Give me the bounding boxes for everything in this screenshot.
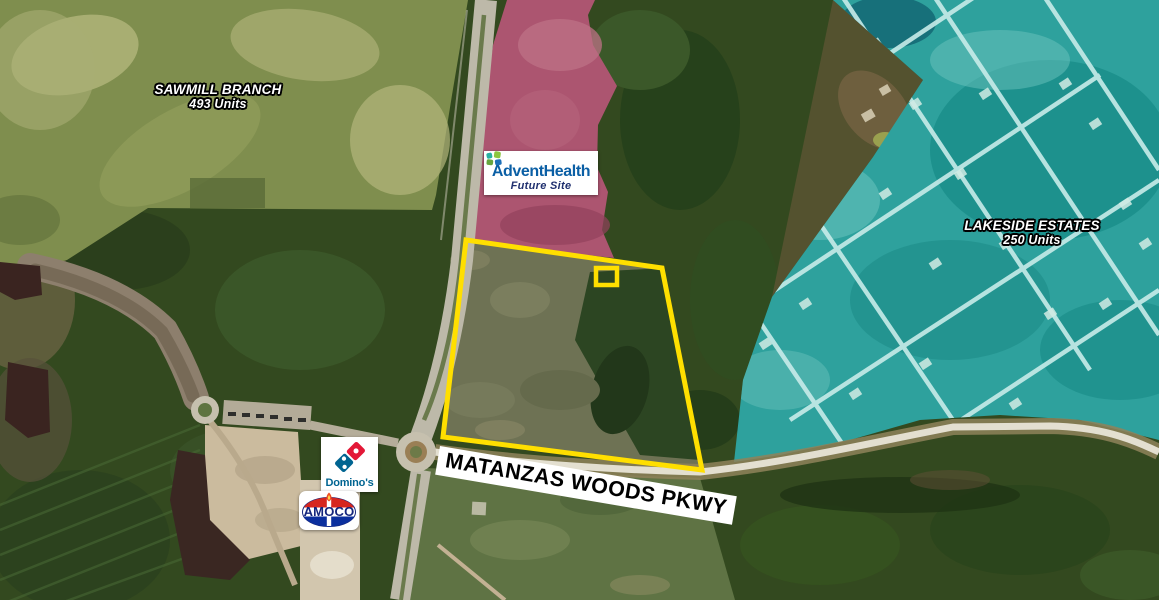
aerial-map: SAWMILL BRANCH 493 Units LAKESIDE ESTATE… <box>0 0 1159 600</box>
sawmill-branch-units: 493 Units <box>98 97 338 112</box>
sawmill-branch-label: SAWMILL BRANCH 493 Units <box>98 82 338 112</box>
dominos-name: Domino's <box>321 477 378 489</box>
adventhealth-brand: AdventHealth <box>484 163 598 181</box>
lakeside-estates-name: LAKESIDE ESTATES <box>912 218 1152 233</box>
adventhealth-label-box: AdventHealth Future Site <box>484 151 598 195</box>
west-roundabout <box>191 396 219 424</box>
dominos-logo: Domino's <box>321 437 378 492</box>
adventhealth-subtitle: Future Site <box>484 180 598 192</box>
amoco-logo: AMOCO <box>299 491 359 530</box>
amoco-name: AMOCO <box>299 504 359 519</box>
roundabout <box>396 432 436 472</box>
lakeside-estates-label: LAKESIDE ESTATES 250 Units <box>912 218 1152 248</box>
lakeside-estates-units: 250 Units <box>912 233 1152 248</box>
dominos-tile-icon <box>332 439 368 475</box>
sawmill-branch-name: SAWMILL BRANCH <box>98 82 338 97</box>
